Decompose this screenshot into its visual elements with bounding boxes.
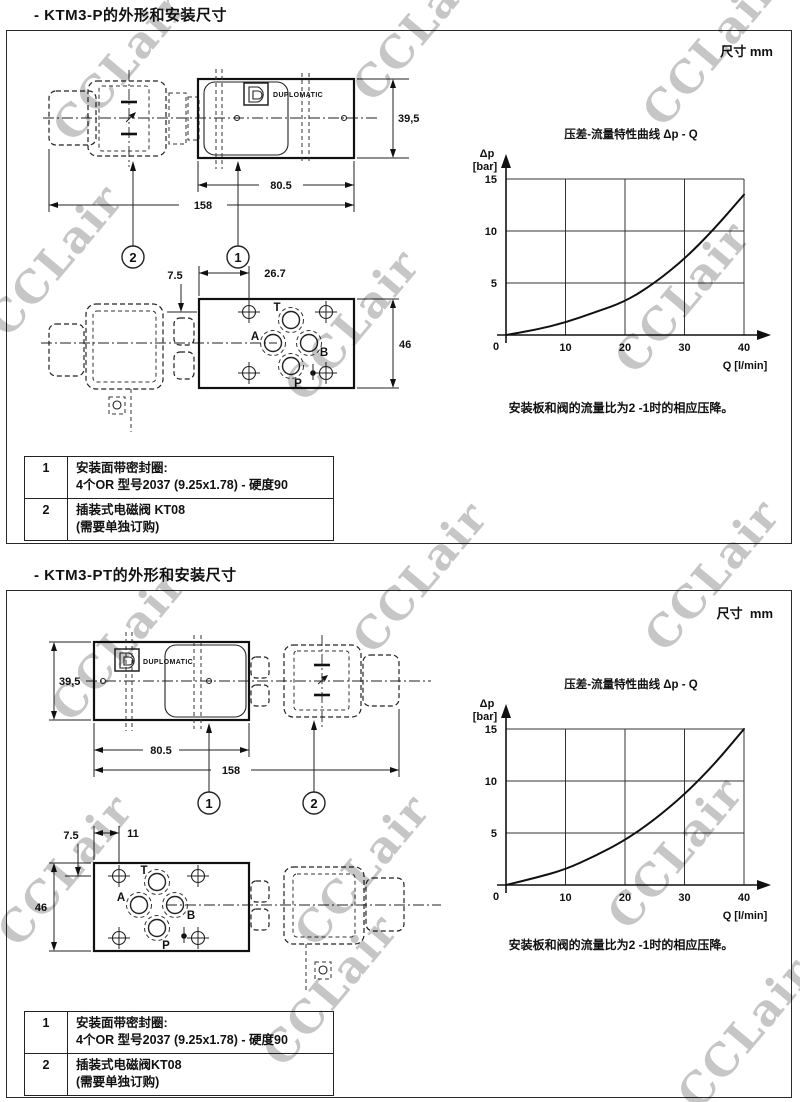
y-tick: 15 (485, 174, 497, 186)
dim-body-label: 80.5 (270, 180, 291, 192)
note-line: 安装面带密封圈: (76, 1015, 325, 1032)
port-label-t: T (140, 865, 147, 877)
section1-top-view-drawing: T A B P 7.5 26.7 46 (21, 256, 441, 451)
section1-title: - KTM3-P的外形和安装尺寸 (34, 4, 227, 25)
y-tick: 10 (485, 776, 497, 788)
y-tick: 10 (485, 226, 497, 238)
y-tick: 15 (485, 724, 497, 736)
x-tick: 40 (738, 342, 750, 354)
section2-unit-label: 尺寸 mm (717, 603, 773, 622)
note-line: 插装式电磁阀 KT08 (76, 502, 325, 519)
brand-text: DUPLOMATIC (143, 659, 193, 666)
x-tick: 30 (678, 892, 690, 904)
port-holes (127, 870, 188, 941)
note-line: (需要单独订购) (76, 519, 325, 536)
note-number: 1 (25, 1012, 68, 1054)
y-axis-unit: [bar] (473, 161, 498, 173)
note-number: 1 (25, 457, 68, 499)
note-line: (需要单独订购) (76, 1074, 325, 1091)
dim-hole-label: 11 (127, 828, 139, 840)
y-axis-unit: [bar] (473, 711, 498, 723)
chart-title: 压差-流量特性曲线 Δp - Q (564, 127, 698, 141)
x-tick: 10 (559, 342, 571, 354)
section1-notes-table: 1 安装面带密封圈: 4个OR 型号2037 (9.25x1.78) - 硬度9… (24, 456, 334, 541)
port-label-t: T (273, 302, 280, 314)
section2-top-view-drawing: T A B P 46 7.5 11 (21, 816, 461, 1011)
dim-edge-label: 7.5 (167, 270, 182, 282)
table-row: 2 插装式电磁阀 KT08 (需要单独订购) (25, 498, 334, 540)
y-tick: 5 (491, 278, 497, 290)
note-line: 4个OR 型号2037 (9.25x1.78) - 硬度90 (76, 477, 325, 494)
valve-body-outline (198, 79, 354, 158)
section2-chart-note: 安装板和阀的流量比为2 -1时的相应压降。 (451, 936, 791, 953)
note-line: 4个OR 型号2037 (9.25x1.78) - 硬度90 (76, 1032, 325, 1049)
x-axis-label: Q [l/min] (723, 360, 768, 372)
port-label-b: B (187, 910, 195, 922)
section2-notes-table: 1 安装面带密封圈: 4个OR 型号2037 (9.25x1.78) - 硬度9… (24, 1011, 334, 1096)
callout-number: 1 (205, 796, 212, 811)
x-tick: 20 (619, 342, 631, 354)
section1-chart: 压差-流量特性曲线 Δp - Q Δp [bar] 15 10 5 0 10 2… (451, 111, 791, 376)
x-tick: 10 (559, 892, 571, 904)
origin-tick: 0 (493, 891, 499, 903)
section2-side-view-drawing: DUPLOMATIC 39,5 80.5 158 (31, 631, 461, 831)
solenoid-coil-outline (88, 81, 166, 156)
dim-plate-height-label: 46 (35, 902, 47, 914)
section1-chart-note: 安装板和阀的流量比为2 -1时的相应压降。 (451, 399, 791, 416)
note-number: 2 (25, 498, 68, 540)
port-label-a: A (251, 331, 259, 343)
dim-plate-height-label: 46 (399, 339, 411, 351)
table-row: 2 插装式电磁阀KT08 (需要单独订购) (25, 1053, 334, 1095)
note-line: 安装面带密封圈: (76, 460, 325, 477)
solenoid-outline (86, 304, 163, 389)
dim-edge-label: 7.5 (63, 830, 78, 842)
datasheet-page: CCLairCCLairCCLairCCLairCCLairCCLairCCLa… (0, 0, 800, 1102)
port-label-a: A (117, 892, 125, 904)
dim-height-label: 39,5 (59, 676, 80, 688)
section2-chart: 压差-流量特性曲线 Δp - Q Δp [bar] 15 10 5 0 10 2… (451, 661, 791, 926)
x-axis-label: Q [l/min] (723, 910, 768, 922)
y-axis-label: Δp (480, 148, 495, 160)
port-label-p: P (294, 378, 302, 390)
x-tick: 40 (738, 892, 750, 904)
table-row: 1 安装面带密封圈: 4个OR 型号2037 (9.25x1.78) - 硬度9… (25, 457, 334, 499)
solenoid-outline (284, 867, 364, 944)
brand-text: DUPLOMATIC (273, 92, 323, 99)
section1-unit-label: 尺寸 mm (720, 41, 773, 60)
note-number: 2 (25, 1053, 68, 1095)
section2-title: - KTM3-PT的外形和安装尺寸 (34, 564, 237, 585)
callout-number: 2 (310, 796, 317, 811)
port-label-p: P (162, 940, 170, 952)
dim-height-label: 39,5 (398, 113, 419, 125)
table-row: 1 安装面带密封圈: 4个OR 型号2037 (9.25x1.78) - 硬度9… (25, 1012, 334, 1054)
chart-title: 压差-流量特性曲线 Δp - Q (564, 677, 698, 691)
dim-body-label: 80.5 (150, 745, 171, 757)
dim-total-label: 158 (222, 765, 240, 777)
x-tick: 20 (619, 892, 631, 904)
connector-outline (363, 655, 399, 706)
y-tick: 5 (491, 828, 497, 840)
origin-tick: 0 (493, 341, 499, 353)
section1-frame: 尺寸 mm DUPLOMATIC (6, 30, 792, 544)
section2-frame: 尺寸 mm DUPLOMATIC 39,5 (6, 590, 792, 1098)
dim-total-label: 158 (194, 200, 212, 212)
dim-hole-label: 26.7 (264, 268, 285, 280)
x-tick: 30 (678, 342, 690, 354)
note-line: 插装式电磁阀KT08 (76, 1057, 325, 1074)
port-label-b: B (320, 347, 328, 359)
y-axis-label: Δp (480, 698, 495, 710)
